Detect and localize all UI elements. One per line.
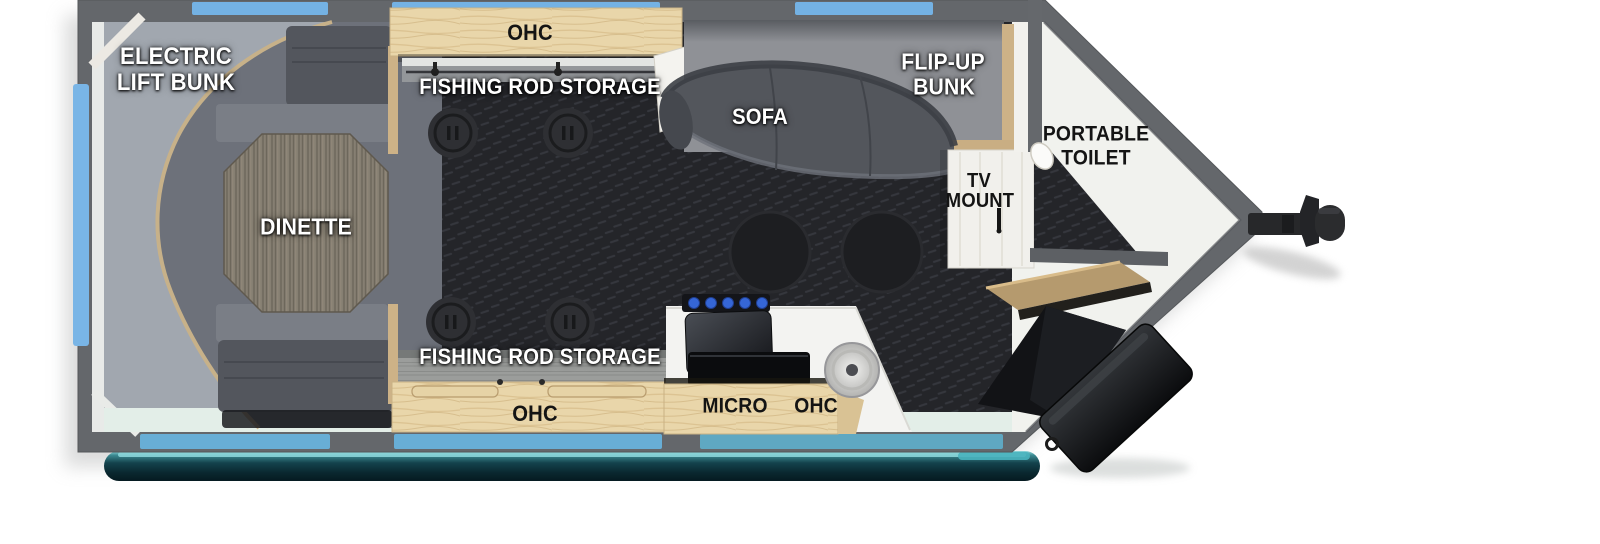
rod-slot bbox=[412, 386, 498, 397]
label-fishing-rod-storage-bottom: FISHING ROD STORAGE bbox=[419, 346, 661, 368]
dinette-bench-bottom-back bbox=[218, 340, 392, 412]
rod-slot bbox=[548, 386, 646, 397]
floor-mount-plate bbox=[428, 108, 478, 158]
label-portable-toilet-line1: PORTABLE bbox=[1043, 124, 1149, 145]
floor-speaker-circle bbox=[730, 212, 810, 292]
awning-roller bbox=[104, 451, 1040, 481]
label-electric-lift-bunk-line1: ELECTRIC bbox=[120, 45, 232, 69]
window-bottom-right bbox=[700, 434, 1003, 449]
window-left-side bbox=[73, 84, 89, 346]
floor-mount-plate bbox=[543, 108, 593, 158]
hitch bbox=[1248, 195, 1345, 247]
label-flip-up-bunk-line1: FLIP-UP bbox=[901, 51, 985, 74]
label-tv-mount-line2: MOUNT bbox=[946, 191, 1014, 211]
label-ohc-top: OHC bbox=[507, 22, 553, 44]
floor-mount-plate bbox=[545, 297, 595, 347]
floor-mount-plate bbox=[426, 297, 476, 347]
label-fishing-rod-storage-top: FISHING ROD STORAGE bbox=[419, 76, 661, 98]
window-top-right bbox=[795, 2, 933, 15]
label-dinette: DINETTE bbox=[260, 216, 352, 239]
window-top-left bbox=[192, 2, 328, 15]
label-ohc-kitchen: OHC bbox=[794, 396, 837, 417]
fishing-rod-shelf-top bbox=[402, 58, 676, 66]
label-electric-lift-bunk-line2: LIFT BUNK bbox=[117, 71, 235, 95]
window-bottom-center bbox=[394, 434, 662, 449]
bunk-wood-trim-right bbox=[1002, 24, 1016, 152]
nose-divider-wall bbox=[1028, 0, 1042, 152]
label-micro: MICRO bbox=[702, 396, 767, 417]
floorplan-stage: ELECTRIC LIFT BUNK OHC FISHING ROD STORA… bbox=[0, 0, 1600, 544]
label-flip-up-bunk-line2: BUNK bbox=[913, 76, 975, 99]
bench-under-shadow bbox=[222, 410, 392, 428]
label-sofa: SOFA bbox=[732, 106, 788, 128]
bench-wood-trim-upper bbox=[388, 46, 398, 154]
floorplan-drawing bbox=[0, 0, 1600, 544]
label-ohc-bottom: OHC bbox=[512, 403, 558, 425]
window-bottom-left bbox=[140, 434, 330, 449]
wall-trim-left bbox=[92, 22, 106, 432]
label-portable-toilet-line2: TOILET bbox=[1061, 148, 1130, 169]
label-tv-mount-line1: TV bbox=[967, 171, 991, 191]
floor-speaker-circle bbox=[842, 212, 922, 292]
nose-white-strip bbox=[1014, 22, 1030, 152]
dinette-bench-top-back bbox=[286, 26, 392, 106]
sink bbox=[825, 343, 879, 397]
